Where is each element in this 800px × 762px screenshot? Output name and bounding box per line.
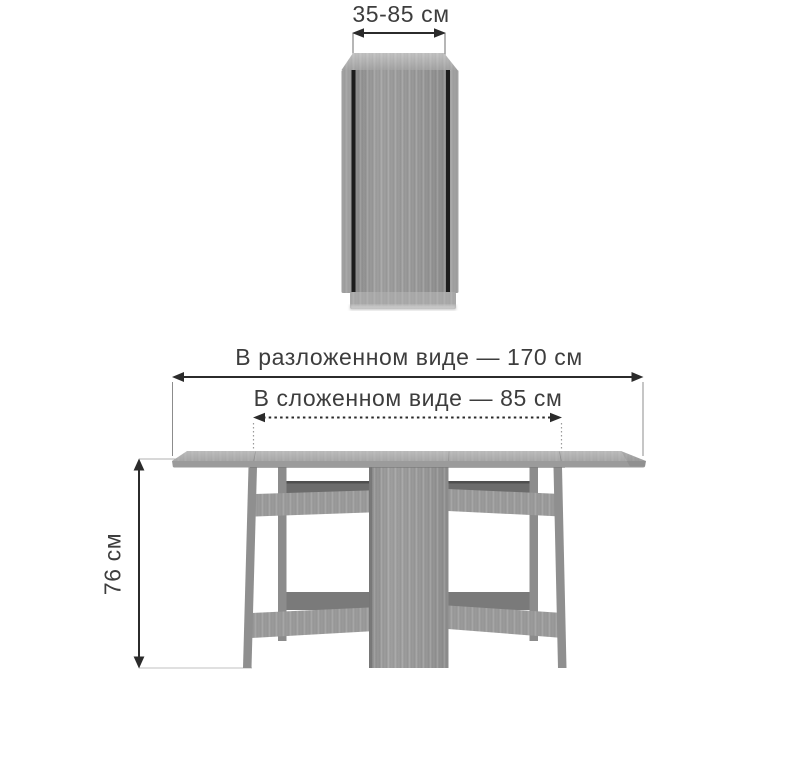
- dim-arrow-folded-length: [253, 413, 562, 452]
- dimension-diagram-canvas: [0, 0, 800, 762]
- unfolded-tabletop: [172, 451, 646, 468]
- folded-length-label: В сложенном виде — 85 см: [254, 385, 563, 412]
- unfolded-length-label: В разложенном виде — 170 см: [235, 344, 582, 371]
- left-outer-leg: [243, 467, 257, 668]
- product-dimension-diagram: 35-85 см В разложенном виде — 170 см В с…: [0, 0, 800, 762]
- folded-right-gap: [446, 70, 450, 298]
- folded-width-label: 35-85 см: [352, 1, 449, 28]
- height-label: 76 см: [100, 533, 127, 595]
- pedestal: [369, 465, 449, 668]
- dim-arrow-folded-width: [352, 28, 446, 56]
- folded-left-gap: [352, 70, 356, 298]
- unfolded-table-view: [134, 372, 646, 669]
- dim-arrow-height: [134, 459, 252, 669]
- folded-table-view: [342, 28, 459, 310]
- right-outer-leg: [554, 467, 567, 668]
